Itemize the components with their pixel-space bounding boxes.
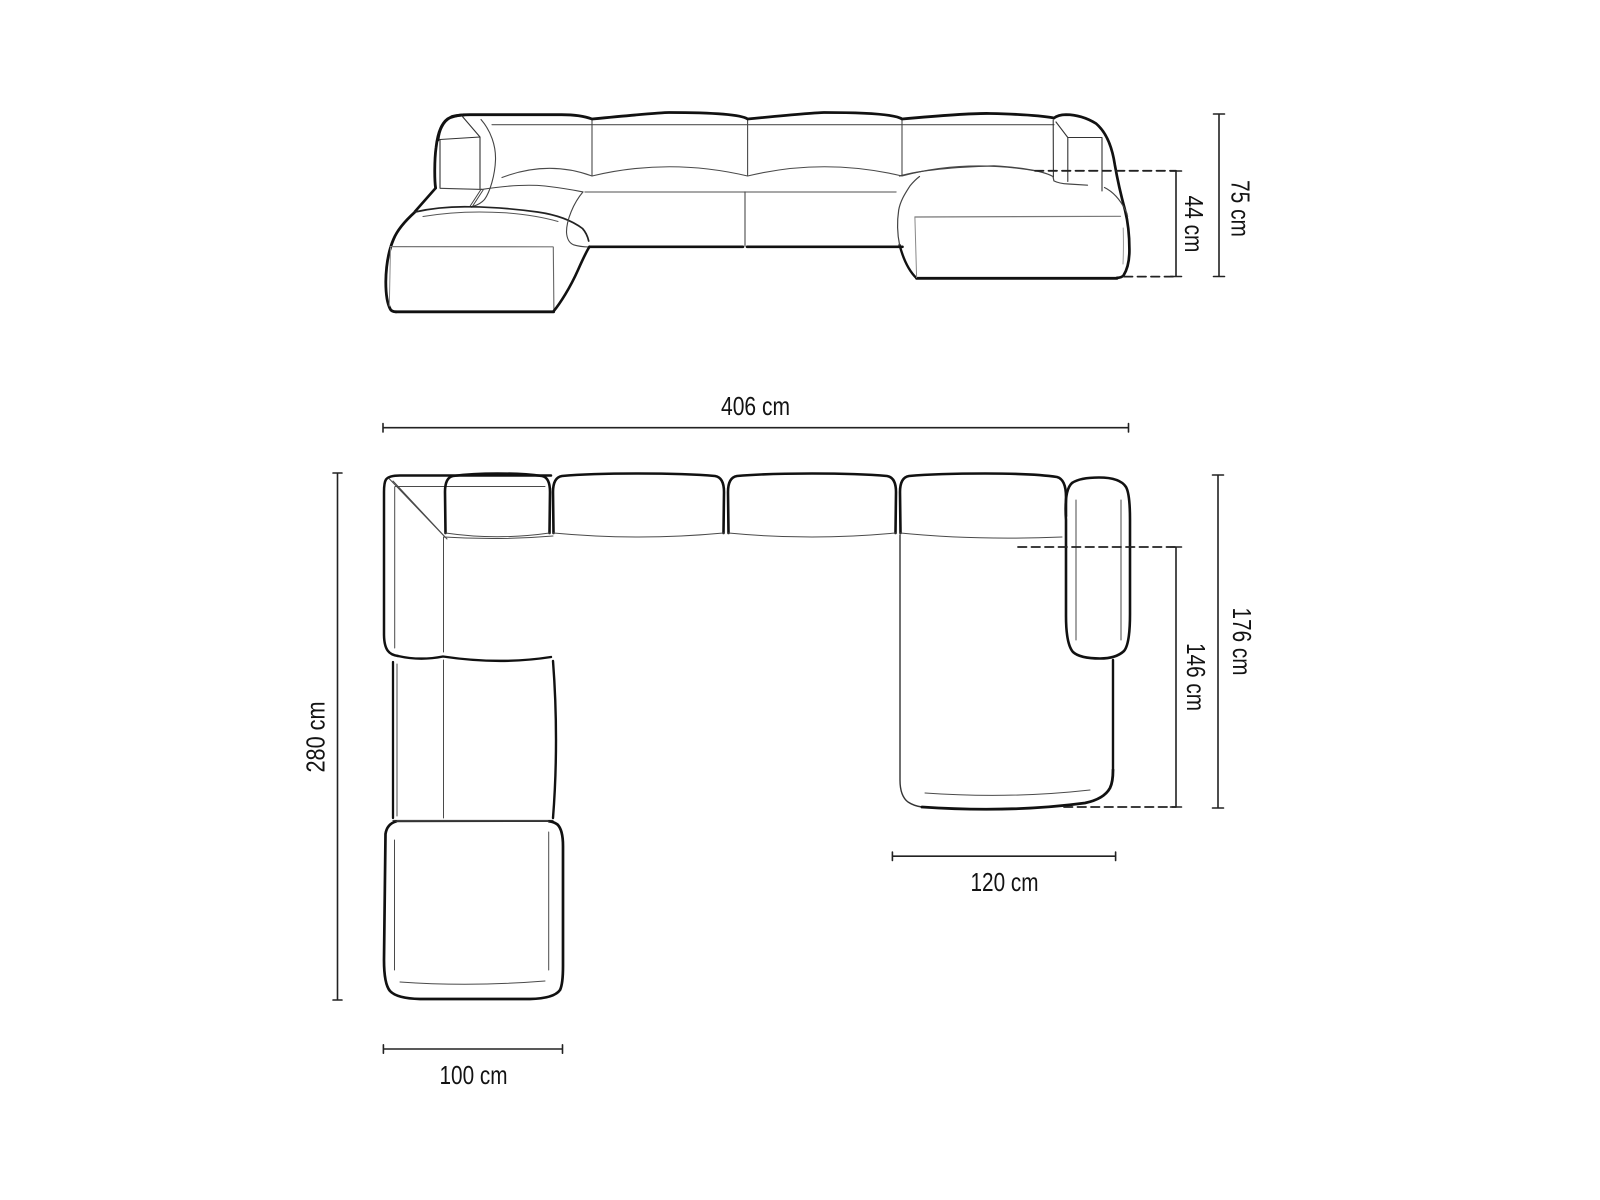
svg-text:120 cm: 120 cm [971, 867, 1039, 897]
svg-text:146 cm: 146 cm [1181, 643, 1211, 711]
svg-text:100 cm: 100 cm [440, 1060, 508, 1090]
svg-text:406 cm: 406 cm [721, 391, 790, 421]
svg-text:280 cm: 280 cm [301, 702, 331, 773]
svg-text:75 cm: 75 cm [1226, 180, 1256, 237]
svg-text:176 cm: 176 cm [1227, 608, 1257, 676]
svg-text:44 cm: 44 cm [1179, 196, 1209, 253]
